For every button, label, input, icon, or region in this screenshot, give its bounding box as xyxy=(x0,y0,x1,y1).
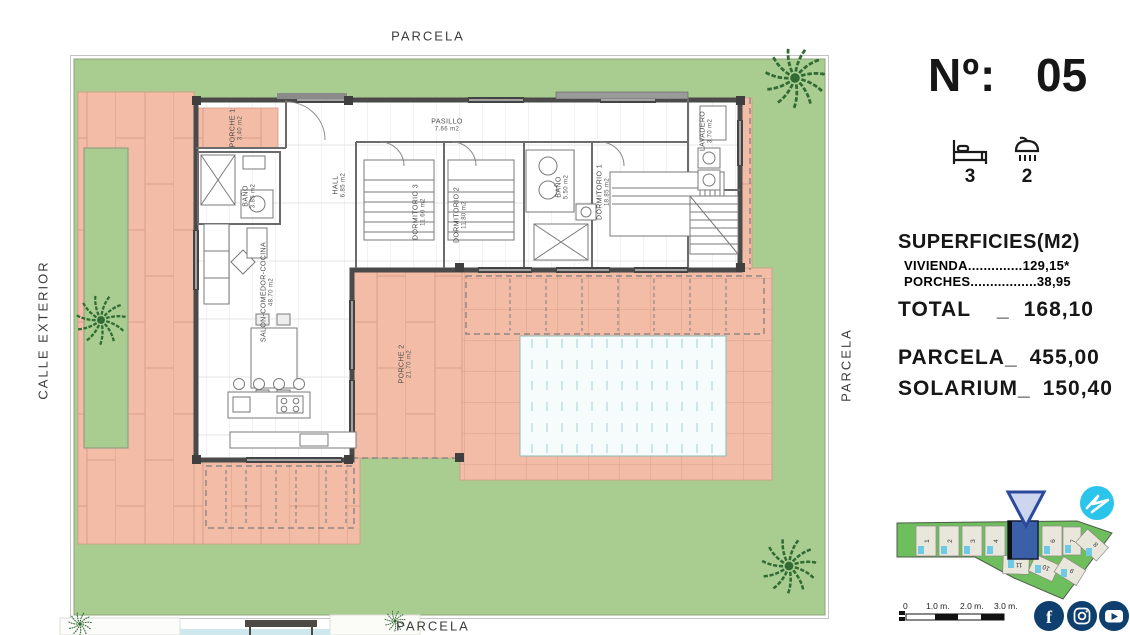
instagram-icon[interactable] xyxy=(1067,601,1097,631)
unit-number-label: Nº: xyxy=(928,48,996,102)
total-row: TOTAL_168,10 xyxy=(898,298,1094,322)
bedrooms-count: 3 xyxy=(955,166,985,188)
unit-number-value: 05 xyxy=(1036,48,1087,102)
room-label-dormitorio2: DORMITORIO 211.80 m2 xyxy=(454,187,469,243)
plot-number: 7 xyxy=(1070,539,1077,543)
scale-label: 3.0 m. xyxy=(994,601,1018,611)
porches-row: PORCHES.................38,95 xyxy=(904,274,1071,289)
bedrooms-icon xyxy=(954,140,986,164)
plot-number: 2 xyxy=(947,539,954,543)
svg-text:f: f xyxy=(1046,607,1053,627)
brand-logo-icon[interactable] xyxy=(1080,486,1114,520)
floor-plan-sheet: 1 2 3 4 6 7 8 9 10 11 0 1.0 m. 2.0 m. 3.… xyxy=(0,0,1130,635)
scale-label: 2.0 m. xyxy=(960,601,984,611)
scale-label: 1.0 m. xyxy=(926,601,950,611)
scale-bar: 0 1.0 m. 2.0 m. 3.0 m. xyxy=(899,601,1018,621)
room-label-porche2: PORCHE 221.70 m2 xyxy=(399,345,414,384)
room-label-bano2: BAÑO5.50 m2 xyxy=(556,175,571,199)
plot-number: 6 xyxy=(1050,539,1057,543)
social-icons: f xyxy=(1034,601,1129,631)
parcela-label-bottom: PARCELA xyxy=(396,619,470,634)
superficies-title: SUPERFICIES(M2) xyxy=(898,231,1080,254)
room-label-porche1: PORCHE 13.40 m2 xyxy=(230,109,245,148)
vivienda-row: VIVIENDA..............129,15* xyxy=(904,258,1070,273)
garden-strip xyxy=(84,148,128,448)
room-label-pasillo: PASILLO7.66 m2 xyxy=(431,119,462,134)
parcela-label-right: PARCELA xyxy=(839,328,854,402)
room-label-lavadero: LAVADERO3.70 m2 xyxy=(700,111,715,151)
room-label-salon: SALON-COMEDOR-COCINA48.70 m2 xyxy=(261,242,276,342)
highlighted-plot-5[interactable] xyxy=(1008,521,1038,559)
room-label-dormitorio3: DORMITORIO 311.60 m2 xyxy=(413,184,428,240)
plot-number: 4 xyxy=(993,539,1000,543)
room-label-bano1: BAÑO3.85 m2 xyxy=(243,184,258,208)
room-label-dormitorio1: DORMITORIO 118.85 m2 xyxy=(597,164,612,220)
plot-number: 1 xyxy=(924,539,931,543)
youtube-icon[interactable] xyxy=(1099,601,1129,631)
bathrooms-count: 2 xyxy=(1012,166,1042,188)
swimming-pool xyxy=(520,336,726,456)
facebook-icon[interactable]: f xyxy=(1034,601,1064,631)
site-mini-map: 1 2 3 4 6 7 8 9 10 11 xyxy=(897,492,1112,599)
plot-number: 3 xyxy=(970,539,977,543)
plot-number: 11 xyxy=(1015,561,1022,568)
parcela-label-top: PARCELA xyxy=(391,29,465,44)
calle-exterior-label: CALLE EXTERIOR xyxy=(36,260,51,399)
room-label-hall: HALL6.85 m2 xyxy=(333,173,348,197)
solarium-row: SOLARIUM_150,40 xyxy=(898,377,1113,401)
parcela-row: PARCELA_455,00 xyxy=(898,346,1100,370)
scale-label: 0 xyxy=(903,601,908,611)
bathrooms-icon xyxy=(1016,138,1038,161)
